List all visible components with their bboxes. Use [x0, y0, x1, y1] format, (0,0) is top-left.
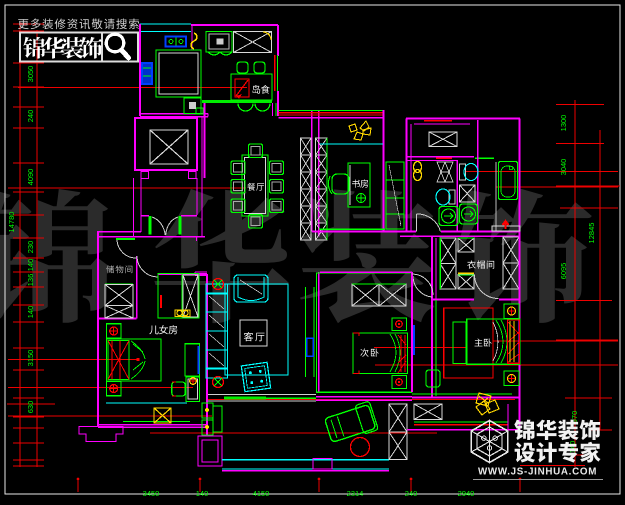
svg-text:136: 136 [26, 274, 35, 287]
svg-text:3040: 3040 [559, 159, 568, 176]
svg-text:1300: 1300 [559, 115, 568, 132]
svg-text:3050: 3050 [26, 66, 35, 83]
svg-text:140: 140 [26, 259, 35, 272]
svg-text:2314: 2314 [347, 489, 364, 498]
svg-text:3150: 3150 [26, 350, 35, 367]
svg-text:3450: 3450 [143, 489, 160, 498]
svg-text:WWW.JS-JINHUA.COM: WWW.JS-JINHUA.COM [478, 467, 597, 478]
svg-text:4150: 4150 [253, 489, 270, 498]
svg-text:240: 240 [405, 489, 418, 498]
svg-text:140: 140 [26, 306, 35, 319]
svg-text:14780: 14780 [7, 212, 16, 233]
svg-text:230: 230 [26, 241, 35, 254]
svg-text:6095: 6095 [559, 263, 568, 280]
svg-text:140: 140 [196, 489, 209, 498]
svg-text:240: 240 [26, 110, 35, 123]
svg-text:2940: 2940 [458, 489, 475, 498]
svg-text:4090: 4090 [26, 169, 35, 186]
svg-text:140: 140 [568, 441, 577, 454]
svg-text:12845: 12845 [587, 223, 596, 244]
svg-text:630: 630 [26, 401, 35, 414]
